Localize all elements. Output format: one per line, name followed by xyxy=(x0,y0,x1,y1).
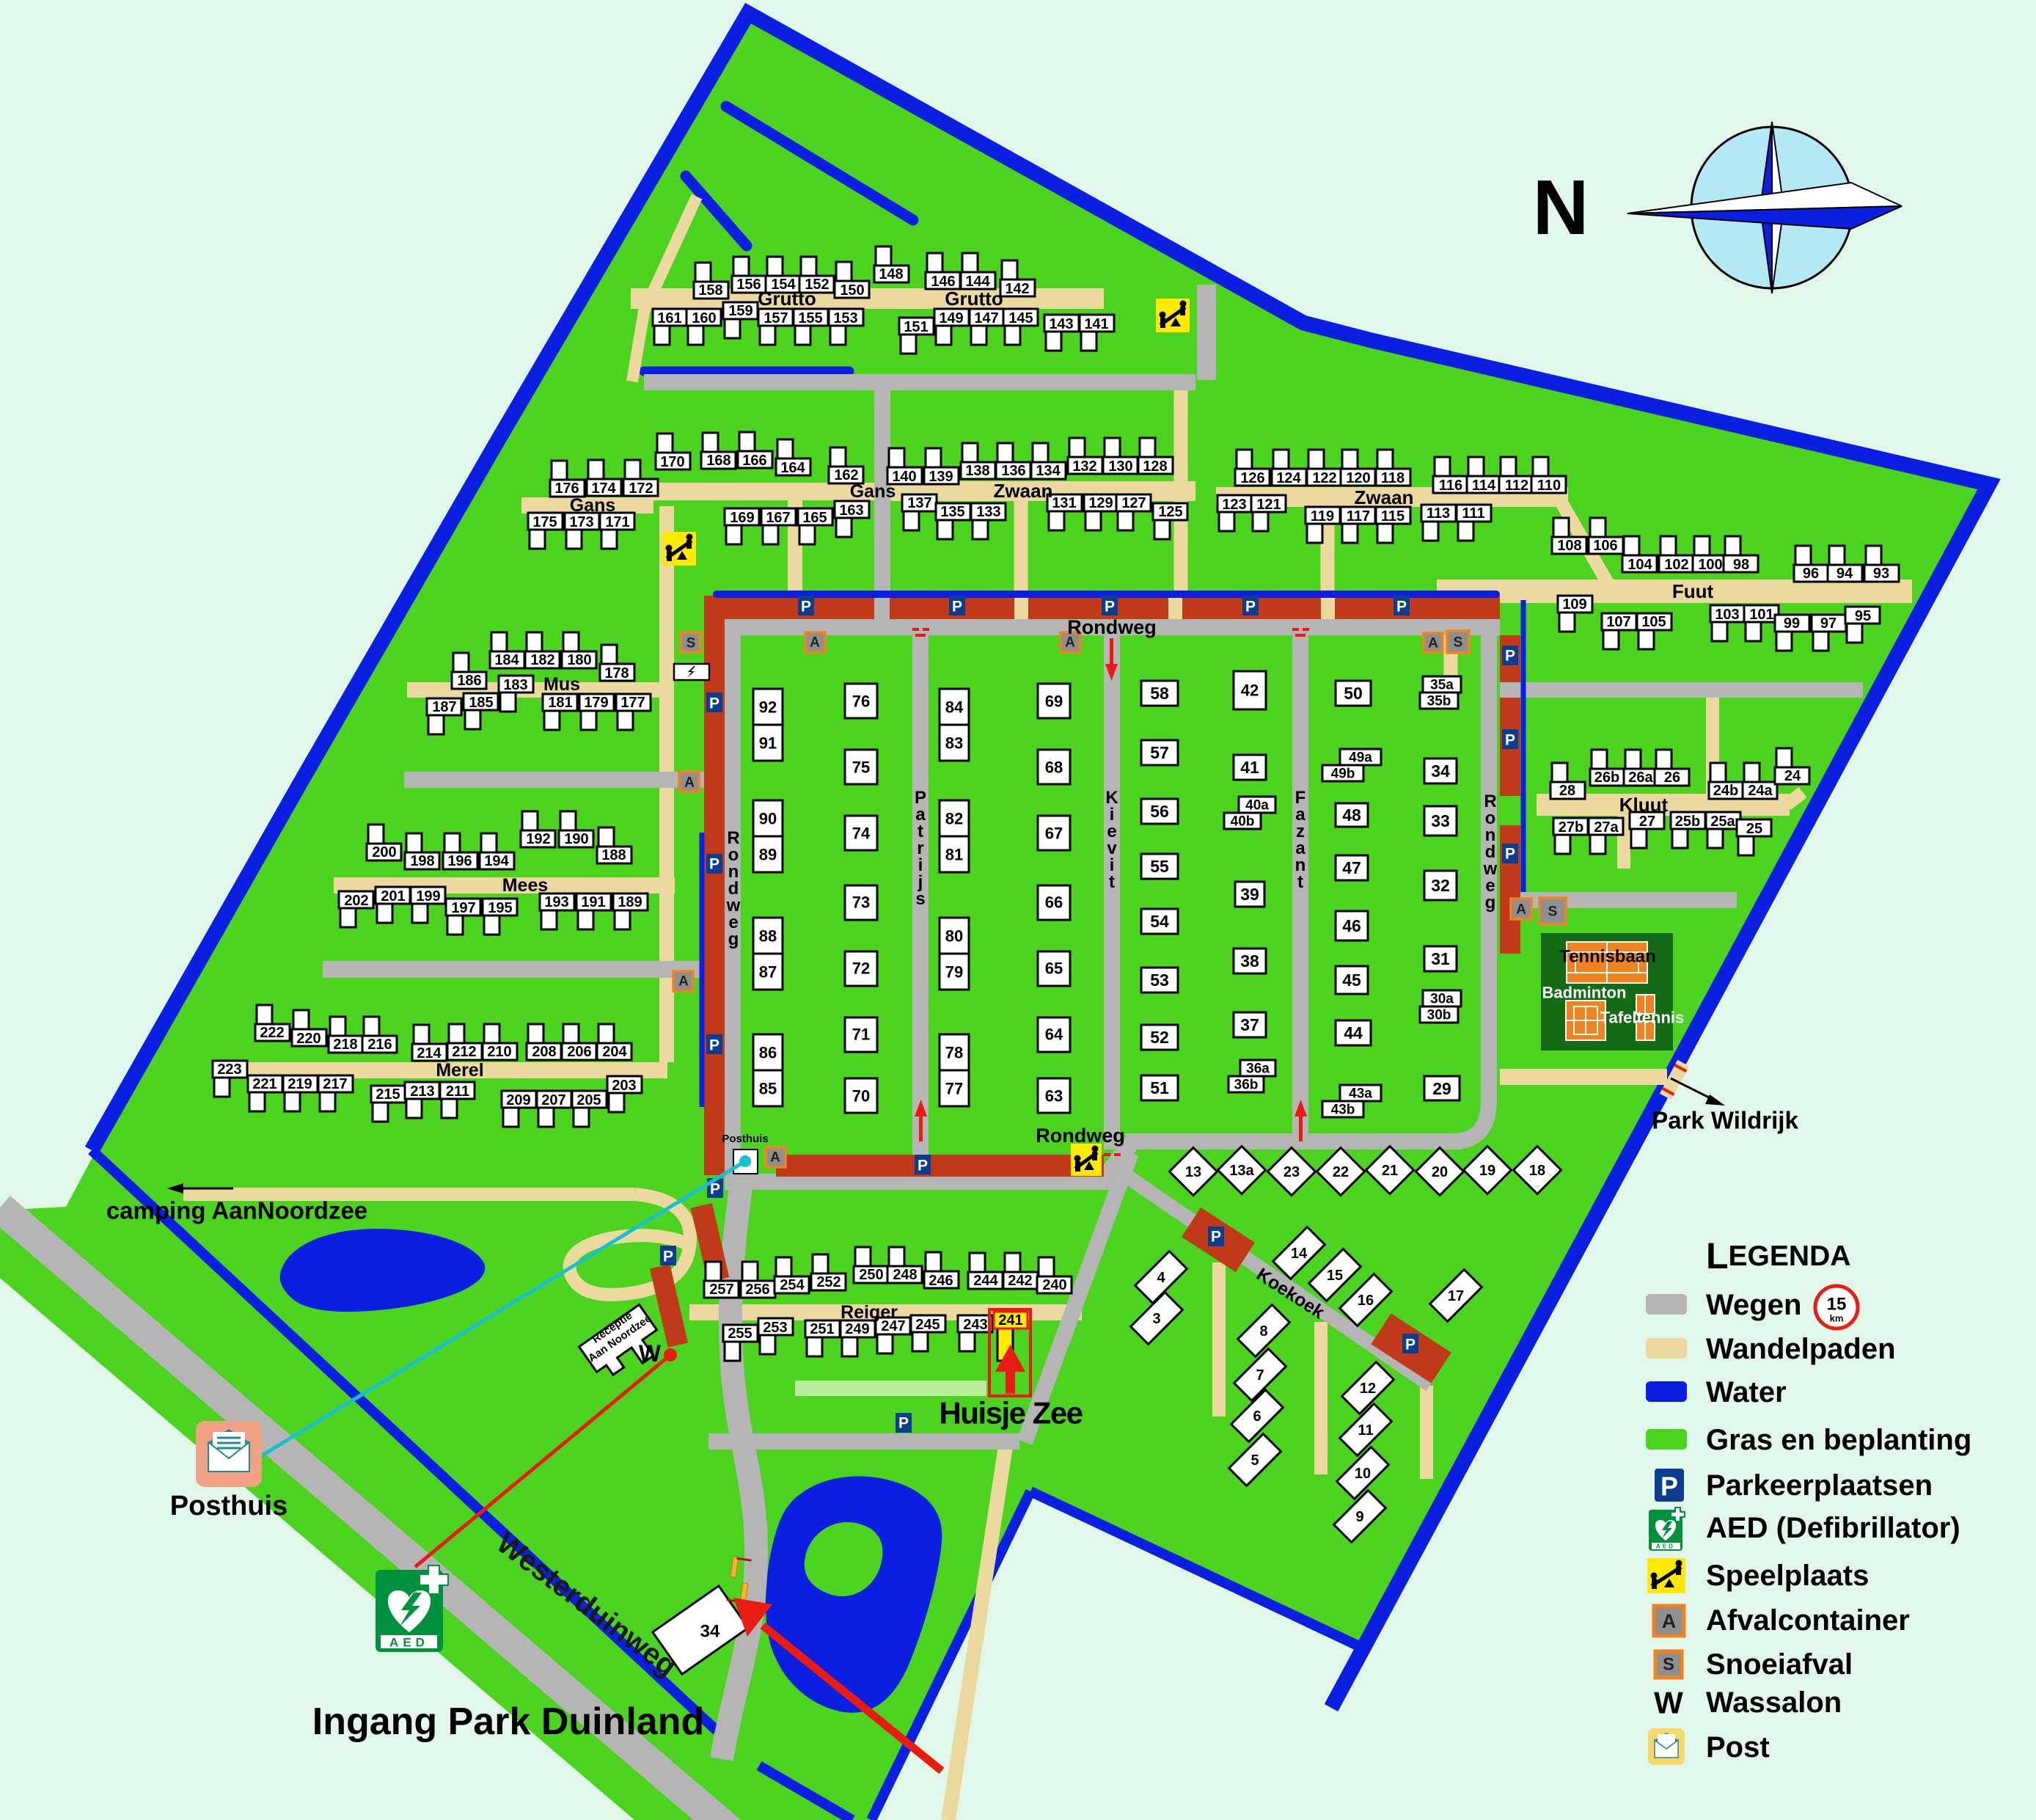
svg-text:A: A xyxy=(770,1150,780,1166)
svg-text:242: 242 xyxy=(1008,1273,1032,1289)
svg-text:77: 77 xyxy=(945,1080,963,1098)
svg-text:AED: AED xyxy=(389,1636,429,1650)
svg-text:166: 166 xyxy=(742,453,766,469)
svg-text:145: 145 xyxy=(1008,310,1033,326)
svg-text:Rondweg: Rondweg xyxy=(1036,1125,1125,1147)
svg-text:A: A xyxy=(1662,1610,1677,1632)
svg-text:Post: Post xyxy=(1706,1731,1770,1764)
svg-text:113: 113 xyxy=(1427,505,1450,522)
svg-text:119: 119 xyxy=(1311,508,1334,525)
svg-text:A: A xyxy=(678,974,689,990)
svg-text:31: 31 xyxy=(1431,949,1450,968)
svg-text:Tennisbaan: Tennisbaan xyxy=(1559,947,1656,967)
svg-text:81: 81 xyxy=(945,846,963,864)
svg-text:104: 104 xyxy=(1627,557,1652,573)
svg-text:68: 68 xyxy=(1045,759,1063,777)
svg-text:169: 169 xyxy=(730,510,754,526)
svg-text:P: P xyxy=(1245,599,1256,615)
svg-text:29: 29 xyxy=(1432,1079,1451,1098)
svg-text:219: 219 xyxy=(288,1076,312,1092)
svg-text:101: 101 xyxy=(1749,607,1773,623)
svg-text:42: 42 xyxy=(1241,681,1259,700)
svg-text:164: 164 xyxy=(780,460,805,476)
svg-text:78: 78 xyxy=(945,1044,963,1062)
svg-text:A: A xyxy=(1516,902,1526,918)
svg-text:97: 97 xyxy=(1820,615,1837,632)
svg-text:126: 126 xyxy=(1240,470,1264,486)
svg-text:57: 57 xyxy=(1150,743,1169,762)
svg-text:38: 38 xyxy=(1240,951,1259,971)
svg-text:175: 175 xyxy=(532,514,557,530)
svg-text:183: 183 xyxy=(503,677,527,693)
svg-text:163: 163 xyxy=(839,502,863,519)
svg-text:21: 21 xyxy=(1382,1163,1398,1179)
svg-text:Grutto: Grutto xyxy=(945,288,1003,310)
svg-text:AED (Defibrillator): AED (Defibrillator) xyxy=(1706,1512,1960,1544)
svg-text:Kluut: Kluut xyxy=(1619,794,1669,816)
svg-text:215: 215 xyxy=(376,1086,400,1103)
svg-text:Merel: Merel xyxy=(436,1060,483,1081)
svg-text:35b: 35b xyxy=(1427,694,1451,709)
svg-text:55: 55 xyxy=(1150,857,1169,876)
svg-text:Ingang Park Duinland: Ingang Park Duinland xyxy=(312,1700,705,1743)
svg-text:248: 248 xyxy=(893,1267,917,1283)
svg-text:49b: 49b xyxy=(1331,767,1355,782)
svg-text:121: 121 xyxy=(1256,497,1281,513)
svg-text:188: 188 xyxy=(601,847,626,863)
svg-text:24a: 24a xyxy=(1748,783,1773,799)
svg-text:13: 13 xyxy=(1185,1164,1201,1180)
svg-text:Reiger: Reiger xyxy=(841,1302,898,1323)
svg-text:Wassalon: Wassalon xyxy=(1706,1686,1842,1719)
svg-text:241: 241 xyxy=(998,1312,1022,1329)
svg-text:8: 8 xyxy=(1259,1323,1267,1340)
svg-text:19: 19 xyxy=(1479,1163,1495,1179)
svg-text:103: 103 xyxy=(1715,607,1739,623)
svg-text:P: P xyxy=(709,1037,719,1054)
svg-text:LEGENDA: LEGENDA xyxy=(1706,1235,1850,1276)
svg-text:P: P xyxy=(952,599,962,615)
svg-text:33: 33 xyxy=(1431,811,1450,830)
svg-text:122: 122 xyxy=(1312,470,1336,486)
svg-text:89: 89 xyxy=(759,846,777,864)
svg-text:181: 181 xyxy=(548,695,572,711)
svg-text:24: 24 xyxy=(1784,768,1801,784)
svg-text:171: 171 xyxy=(605,514,629,530)
svg-text:74: 74 xyxy=(852,825,871,843)
svg-text:134: 134 xyxy=(1036,463,1061,479)
svg-text:172: 172 xyxy=(629,480,653,497)
svg-text:26: 26 xyxy=(1664,770,1680,786)
svg-text:184: 184 xyxy=(494,652,519,668)
svg-text:147: 147 xyxy=(974,310,998,326)
svg-text:198: 198 xyxy=(410,853,434,869)
svg-text:Gras en beplanting: Gras en beplanting xyxy=(1706,1424,1971,1456)
svg-text:28: 28 xyxy=(1559,783,1575,799)
svg-text:A: A xyxy=(810,635,820,651)
svg-text:114: 114 xyxy=(1472,478,1496,494)
svg-text:253: 253 xyxy=(763,1320,787,1336)
svg-text:Zwaan: Zwaan xyxy=(994,480,1053,502)
svg-text:190: 190 xyxy=(564,831,588,847)
svg-text:41: 41 xyxy=(1240,758,1259,777)
svg-text:82: 82 xyxy=(945,810,963,828)
svg-text:255: 255 xyxy=(728,1326,752,1342)
svg-text:210: 210 xyxy=(487,1044,511,1060)
svg-text:70: 70 xyxy=(852,1087,870,1105)
svg-text:93: 93 xyxy=(1873,566,1889,582)
svg-text:25a: 25a xyxy=(1710,814,1735,830)
svg-text:49a: 49a xyxy=(1349,750,1372,766)
svg-text:211: 211 xyxy=(446,1083,469,1100)
svg-text:96: 96 xyxy=(1803,566,1819,582)
svg-text:128: 128 xyxy=(1143,458,1167,475)
svg-text:220: 220 xyxy=(296,1031,321,1047)
svg-text:24b: 24b xyxy=(1713,783,1738,799)
svg-text:46: 46 xyxy=(1342,916,1361,935)
svg-text:161: 161 xyxy=(657,310,681,326)
svg-text:139: 139 xyxy=(929,469,953,485)
svg-text:Zwaan: Zwaan xyxy=(1355,486,1414,508)
svg-text:P: P xyxy=(1105,599,1115,615)
svg-text:65: 65 xyxy=(1045,960,1063,978)
svg-text:195: 195 xyxy=(488,900,512,916)
svg-text:124: 124 xyxy=(1276,470,1301,486)
svg-text:107: 107 xyxy=(1606,614,1630,630)
svg-text:53: 53 xyxy=(1150,971,1169,990)
svg-text:13a: 13a xyxy=(1229,1163,1254,1179)
svg-text:25: 25 xyxy=(1746,821,1762,837)
svg-text:26a: 26a xyxy=(1628,770,1653,786)
svg-text:69: 69 xyxy=(1045,692,1063,711)
svg-text:108: 108 xyxy=(1557,538,1581,554)
svg-text:91: 91 xyxy=(759,734,777,753)
svg-text:W: W xyxy=(1654,1686,1683,1720)
svg-text:106: 106 xyxy=(1593,538,1617,554)
svg-text:15: 15 xyxy=(1327,1268,1343,1284)
svg-text:127: 127 xyxy=(1121,495,1146,511)
svg-text:80: 80 xyxy=(945,927,963,946)
svg-text:Rondweg: Rondweg xyxy=(1483,792,1498,913)
svg-text:34: 34 xyxy=(700,1622,720,1642)
svg-text:5: 5 xyxy=(1250,1452,1259,1469)
svg-text:201: 201 xyxy=(381,888,405,904)
svg-text:202: 202 xyxy=(344,893,368,909)
svg-text:Wandelpaden: Wandelpaden xyxy=(1706,1333,1896,1365)
svg-text:249: 249 xyxy=(845,1321,869,1337)
svg-text:218: 218 xyxy=(333,1037,357,1053)
svg-text:27a: 27a xyxy=(1594,819,1619,836)
svg-text:26b: 26b xyxy=(1594,770,1619,786)
svg-text:64: 64 xyxy=(1045,1026,1063,1044)
svg-text:30b: 30b xyxy=(1427,1008,1451,1023)
svg-text:110: 110 xyxy=(1537,478,1561,494)
svg-text:157: 157 xyxy=(763,310,788,326)
svg-text:133: 133 xyxy=(976,504,1000,520)
svg-text:P: P xyxy=(1505,648,1515,665)
svg-text:115: 115 xyxy=(1381,508,1405,525)
svg-text:206: 206 xyxy=(567,1044,591,1060)
svg-text:88: 88 xyxy=(759,927,777,946)
svg-text:6: 6 xyxy=(1253,1408,1261,1425)
svg-text:36b: 36b xyxy=(1234,1078,1259,1093)
svg-text:245: 245 xyxy=(915,1317,940,1333)
svg-text:192: 192 xyxy=(526,831,550,847)
svg-text:10: 10 xyxy=(1355,1466,1371,1482)
svg-text:193: 193 xyxy=(544,894,568,910)
svg-text:213: 213 xyxy=(410,1083,434,1100)
svg-text:P: P xyxy=(709,695,719,712)
svg-text:14: 14 xyxy=(1291,1246,1308,1262)
svg-text:Badminton: Badminton xyxy=(1542,984,1627,1002)
svg-text:221: 221 xyxy=(252,1076,277,1092)
svg-text:40b: 40b xyxy=(1231,814,1255,830)
svg-text:36a: 36a xyxy=(1246,1061,1270,1077)
svg-text:160: 160 xyxy=(692,310,716,326)
svg-text:150: 150 xyxy=(840,282,864,299)
svg-text:191: 191 xyxy=(581,894,605,910)
svg-text:250: 250 xyxy=(859,1267,883,1283)
svg-text:176: 176 xyxy=(554,480,579,497)
svg-text:246: 246 xyxy=(929,1273,953,1289)
svg-text:P: P xyxy=(1405,1337,1416,1353)
svg-text:Huisje Zee: Huisje Zee xyxy=(939,1396,1082,1430)
svg-text:km: km xyxy=(1830,1313,1844,1324)
svg-text:86: 86 xyxy=(759,1044,777,1062)
svg-text:140: 140 xyxy=(892,469,916,485)
svg-text:180: 180 xyxy=(567,652,591,668)
svg-text:P: P xyxy=(709,856,719,873)
svg-text:125: 125 xyxy=(1158,504,1182,520)
svg-text:222: 222 xyxy=(260,1025,284,1041)
svg-text:Gans: Gans xyxy=(850,481,896,502)
svg-text:151: 151 xyxy=(904,319,928,335)
svg-text:48: 48 xyxy=(1342,805,1361,825)
svg-text:94: 94 xyxy=(1837,566,1853,582)
svg-text:Posthuis: Posthuis xyxy=(722,1133,768,1145)
svg-text:76: 76 xyxy=(852,692,870,711)
svg-text:35a: 35a xyxy=(1430,678,1454,693)
svg-text:131: 131 xyxy=(1052,495,1076,511)
svg-text:257: 257 xyxy=(709,1282,733,1298)
svg-text:98: 98 xyxy=(1733,557,1749,573)
svg-text:142: 142 xyxy=(1005,281,1029,297)
svg-text:136: 136 xyxy=(1001,463,1025,479)
svg-text:P: P xyxy=(801,599,811,615)
svg-text:58: 58 xyxy=(1150,684,1169,703)
svg-text:23: 23 xyxy=(1284,1164,1300,1180)
svg-text:130: 130 xyxy=(1108,458,1132,475)
svg-text:Rondweg: Rondweg xyxy=(726,828,741,949)
svg-text:Afvalcontainer: Afvalcontainer xyxy=(1706,1604,1910,1637)
svg-text:204: 204 xyxy=(602,1044,627,1060)
svg-text:203: 203 xyxy=(612,1078,636,1094)
svg-text:Speelplaats: Speelplaats xyxy=(1706,1560,1869,1592)
svg-text:207: 207 xyxy=(541,1092,565,1108)
svg-text:92: 92 xyxy=(759,698,777,717)
svg-text:90: 90 xyxy=(759,810,777,828)
svg-text:54: 54 xyxy=(1150,912,1169,931)
svg-text:4: 4 xyxy=(1157,1270,1165,1286)
svg-text:Wegen: Wegen xyxy=(1706,1289,1801,1321)
svg-text:112: 112 xyxy=(1505,478,1528,494)
svg-text:199: 199 xyxy=(416,888,440,904)
svg-text:85: 85 xyxy=(759,1080,777,1098)
svg-text:205: 205 xyxy=(576,1092,601,1108)
svg-text:223: 223 xyxy=(217,1061,241,1078)
svg-text:254: 254 xyxy=(780,1277,805,1293)
svg-text:179: 179 xyxy=(584,695,608,711)
svg-text:182: 182 xyxy=(530,652,554,668)
svg-text:117: 117 xyxy=(1347,508,1370,525)
svg-text:11: 11 xyxy=(1358,1422,1373,1439)
svg-text:138: 138 xyxy=(965,463,989,479)
svg-text:Water: Water xyxy=(1706,1376,1787,1408)
svg-text:155: 155 xyxy=(798,310,822,326)
svg-text:P: P xyxy=(1211,1229,1221,1246)
svg-text:153: 153 xyxy=(833,310,857,326)
svg-text:39: 39 xyxy=(1240,885,1259,904)
svg-text:187: 187 xyxy=(432,699,456,715)
svg-text:84: 84 xyxy=(945,698,964,717)
svg-text:158: 158 xyxy=(698,282,722,299)
svg-text:P: P xyxy=(1505,732,1515,749)
svg-text:71: 71 xyxy=(852,1026,870,1044)
svg-text:159: 159 xyxy=(728,303,752,319)
svg-text:148: 148 xyxy=(879,266,903,282)
svg-text:149: 149 xyxy=(939,310,963,326)
svg-text:7: 7 xyxy=(1256,1367,1264,1384)
svg-text:37: 37 xyxy=(1240,1015,1259,1034)
svg-text:Posthuis: Posthuis xyxy=(170,1491,288,1521)
svg-text:63: 63 xyxy=(1045,1087,1063,1105)
svg-text:170: 170 xyxy=(660,454,684,470)
svg-text:27b: 27b xyxy=(1559,819,1583,836)
svg-text:216: 216 xyxy=(367,1037,392,1053)
svg-text:66: 66 xyxy=(1045,893,1063,912)
svg-text:18: 18 xyxy=(1529,1163,1545,1179)
svg-text:30a: 30a xyxy=(1430,992,1454,1007)
svg-text:P: P xyxy=(663,1249,673,1265)
svg-text:143: 143 xyxy=(1049,316,1073,332)
svg-text:214: 214 xyxy=(417,1045,442,1061)
svg-text:P: P xyxy=(1660,1472,1678,1502)
svg-text:252: 252 xyxy=(816,1274,841,1290)
svg-text:32: 32 xyxy=(1431,876,1450,895)
svg-text:51: 51 xyxy=(1150,1078,1169,1097)
svg-text:208: 208 xyxy=(532,1044,556,1060)
svg-text:Mus: Mus xyxy=(543,674,580,695)
svg-text:S: S xyxy=(1454,635,1463,651)
svg-text:118: 118 xyxy=(1381,470,1405,486)
svg-text:173: 173 xyxy=(569,514,593,530)
svg-text:189: 189 xyxy=(618,894,642,910)
svg-text:67: 67 xyxy=(1045,825,1063,843)
svg-text:129: 129 xyxy=(1088,495,1113,511)
svg-text:43a: 43a xyxy=(1349,1086,1372,1102)
svg-text:167: 167 xyxy=(766,510,790,526)
svg-text:27: 27 xyxy=(1639,814,1655,830)
svg-text:209: 209 xyxy=(506,1092,530,1108)
svg-text:44: 44 xyxy=(1344,1023,1363,1042)
svg-text:N: N xyxy=(1533,164,1589,251)
svg-text:197: 197 xyxy=(451,900,475,916)
svg-text:185: 185 xyxy=(469,695,493,711)
svg-text:25b: 25b xyxy=(1675,814,1700,830)
svg-text:200: 200 xyxy=(372,844,396,860)
svg-text:Grutto: Grutto xyxy=(758,288,816,310)
svg-text:56: 56 xyxy=(1150,802,1169,821)
svg-text:Parkeerplaatsen: Parkeerplaatsen xyxy=(1706,1469,1933,1502)
svg-text:17: 17 xyxy=(1448,1288,1464,1304)
svg-text:S: S xyxy=(686,636,696,651)
svg-text:256: 256 xyxy=(745,1282,769,1298)
svg-text:Tafeltennis: Tafeltennis xyxy=(1600,1009,1685,1027)
svg-text:165: 165 xyxy=(802,510,827,526)
svg-text:P: P xyxy=(1396,599,1407,615)
svg-text:186: 186 xyxy=(457,673,481,689)
svg-text:9: 9 xyxy=(1355,1509,1363,1525)
svg-text:243: 243 xyxy=(963,1317,987,1333)
svg-text:111: 111 xyxy=(1462,505,1484,522)
svg-text:168: 168 xyxy=(706,453,730,469)
svg-text:A: A xyxy=(684,775,695,791)
svg-text:109: 109 xyxy=(1562,596,1586,613)
svg-text:244: 244 xyxy=(973,1273,998,1289)
svg-text:Rondweg: Rondweg xyxy=(1067,616,1157,638)
svg-text:20: 20 xyxy=(1432,1164,1448,1180)
svg-text:12: 12 xyxy=(1360,1381,1376,1397)
svg-text:40a: 40a xyxy=(1245,798,1269,814)
svg-text:132: 132 xyxy=(1072,458,1096,475)
svg-text:47: 47 xyxy=(1342,858,1361,877)
svg-text:120: 120 xyxy=(1346,470,1370,486)
svg-text:22: 22 xyxy=(1333,1164,1349,1180)
svg-text:Gans: Gans xyxy=(570,495,616,516)
svg-text:15: 15 xyxy=(1827,1295,1847,1315)
svg-text:Mees: Mees xyxy=(502,875,549,896)
svg-text:45: 45 xyxy=(1342,971,1361,990)
svg-text:79: 79 xyxy=(945,963,963,982)
svg-text:174: 174 xyxy=(591,480,616,497)
svg-text:212: 212 xyxy=(452,1044,476,1060)
svg-text:Fuut: Fuut xyxy=(1672,580,1714,602)
svg-text:Snoeiafval: Snoeiafval xyxy=(1706,1648,1853,1681)
svg-text:S: S xyxy=(1548,904,1558,920)
svg-text:S: S xyxy=(1663,1655,1674,1675)
svg-text:102: 102 xyxy=(1664,557,1688,573)
svg-text:141: 141 xyxy=(1084,316,1108,332)
svg-text:87: 87 xyxy=(759,963,777,982)
svg-text:3: 3 xyxy=(1152,1311,1160,1327)
svg-text:135: 135 xyxy=(940,504,964,520)
svg-text:100: 100 xyxy=(1698,557,1722,573)
svg-text:137: 137 xyxy=(907,495,931,511)
svg-text:Park Wildrijk: Park Wildrijk xyxy=(1652,1107,1798,1134)
svg-text:W: W xyxy=(639,1340,662,1367)
svg-text:P: P xyxy=(918,1158,928,1174)
svg-text:34: 34 xyxy=(1431,761,1450,781)
svg-text:95: 95 xyxy=(1855,608,1871,624)
svg-text:P: P xyxy=(898,1415,909,1432)
svg-text:240: 240 xyxy=(1042,1277,1066,1293)
svg-text:178: 178 xyxy=(604,665,629,681)
svg-text:50: 50 xyxy=(1344,684,1363,703)
svg-text:P: P xyxy=(1505,846,1515,863)
svg-text:52: 52 xyxy=(1150,1028,1169,1047)
svg-text:196: 196 xyxy=(447,853,472,869)
svg-text:AED: AED xyxy=(1656,1543,1675,1550)
